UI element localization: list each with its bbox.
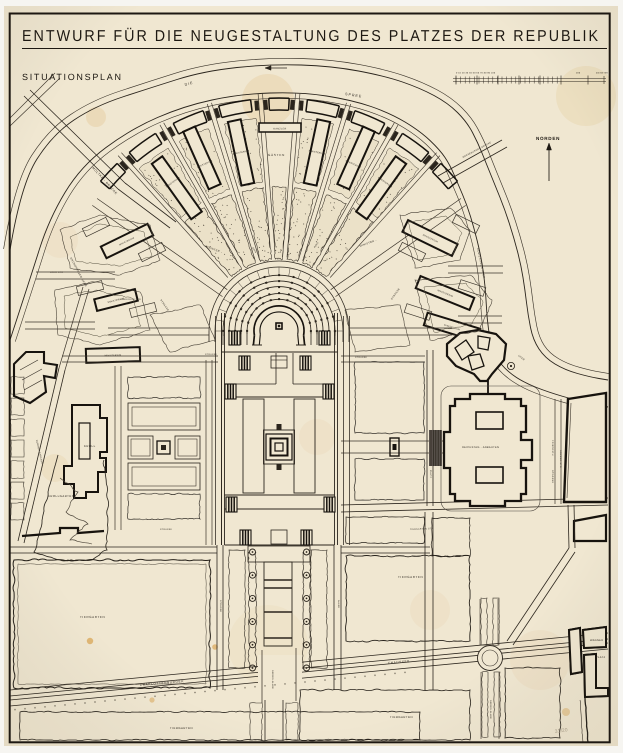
svg-text:NORDEN: NORDEN bbox=[536, 136, 560, 141]
svg-text:0 10 20 30 40 50 60 70 8: 0 10 20 30 40 50 60 70 80 90 100 bbox=[456, 72, 496, 75]
svg-text:200: 200 bbox=[576, 72, 581, 75]
svg-text:ENTWURF FÜR DIE NEUGESTALTU: ENTWURF FÜR DIE NEUGESTALTUNG DES PLATZE… bbox=[22, 27, 600, 45]
svg-text:SITUATIONSPLAN: SITUATIONSPLAN bbox=[22, 72, 123, 82]
svg-text:500 METER: 500 METER bbox=[596, 72, 608, 75]
